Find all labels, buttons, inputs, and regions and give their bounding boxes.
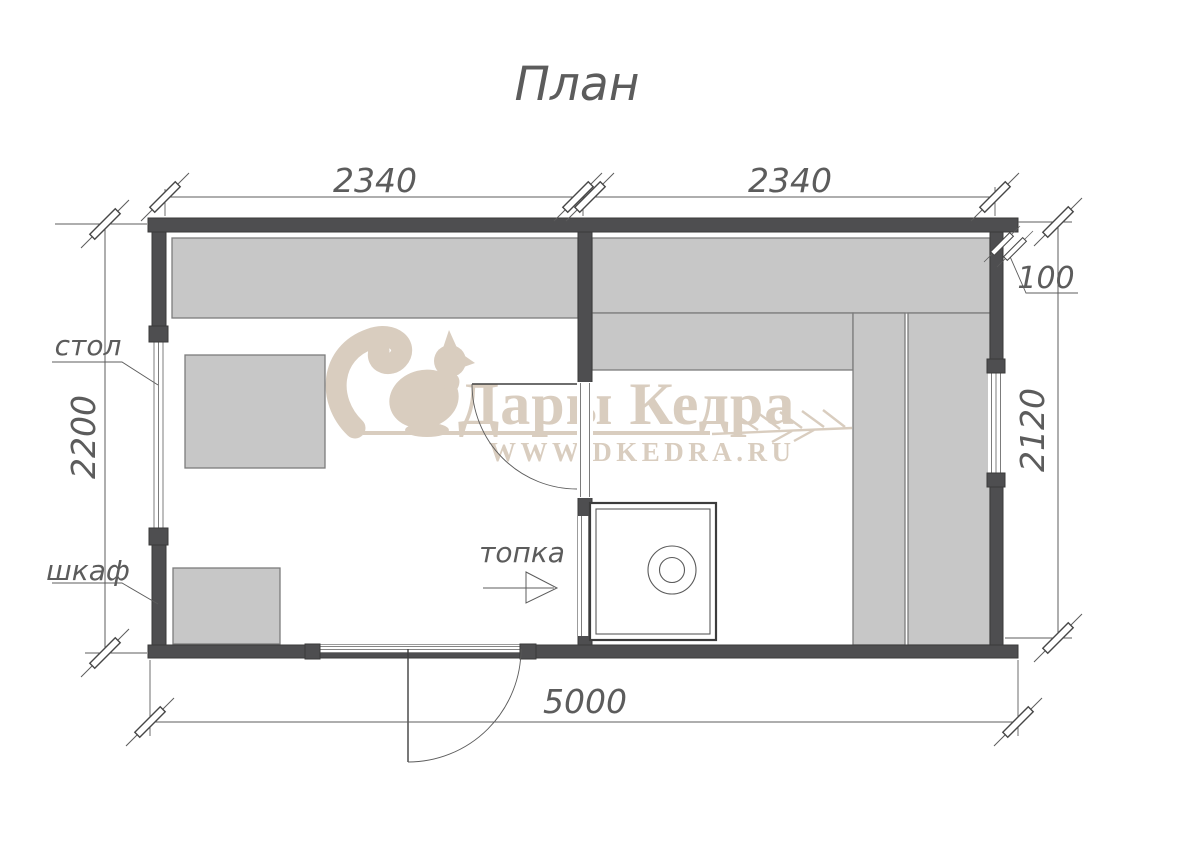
label-firebox: топка [479, 536, 565, 569]
label-cabinet: шкаф [46, 554, 130, 587]
squirrel-icon [336, 330, 475, 437]
watermark-site: WWW.DKEDRA.RU [489, 437, 796, 467]
dim-total-width: 5000 [543, 682, 627, 721]
wall-bottom [148, 645, 1018, 658]
watermark-underline [363, 431, 710, 435]
dim-right-depth: 2120 [1013, 388, 1052, 472]
plan-title: План [515, 57, 640, 112]
cabinet [173, 568, 280, 644]
floor-plan-drawing: Дары Кедра WWW.DKEDRA.RU План [0, 0, 1200, 848]
dim-top-right: 2340 [748, 161, 832, 200]
exterior-door-swing-arc [408, 649, 521, 762]
dim-left-depth: 2200 [64, 395, 103, 479]
watermark-brand: Дары Кедра [458, 371, 795, 437]
left-window [149, 326, 168, 545]
table [185, 355, 325, 468]
wall-top [148, 218, 1018, 232]
exterior-door [305, 644, 536, 762]
label-table: стол [55, 329, 122, 362]
bench-left-room-top [172, 238, 578, 318]
bench-right-room-column [908, 313, 990, 645]
dim-top-left: 2340 [333, 161, 417, 200]
dim-wall-offset: 100 [1017, 261, 1074, 296]
stove [590, 503, 716, 640]
floor-plan-page: Дары Кедра WWW.DKEDRA.RU План [0, 0, 1200, 848]
bench-right-room-top [592, 238, 990, 313]
firebox-arrow-icon [483, 572, 557, 603]
bench-right-room-second [592, 313, 853, 370]
bench-right-room-strip [853, 313, 905, 645]
right-window [987, 359, 1005, 487]
